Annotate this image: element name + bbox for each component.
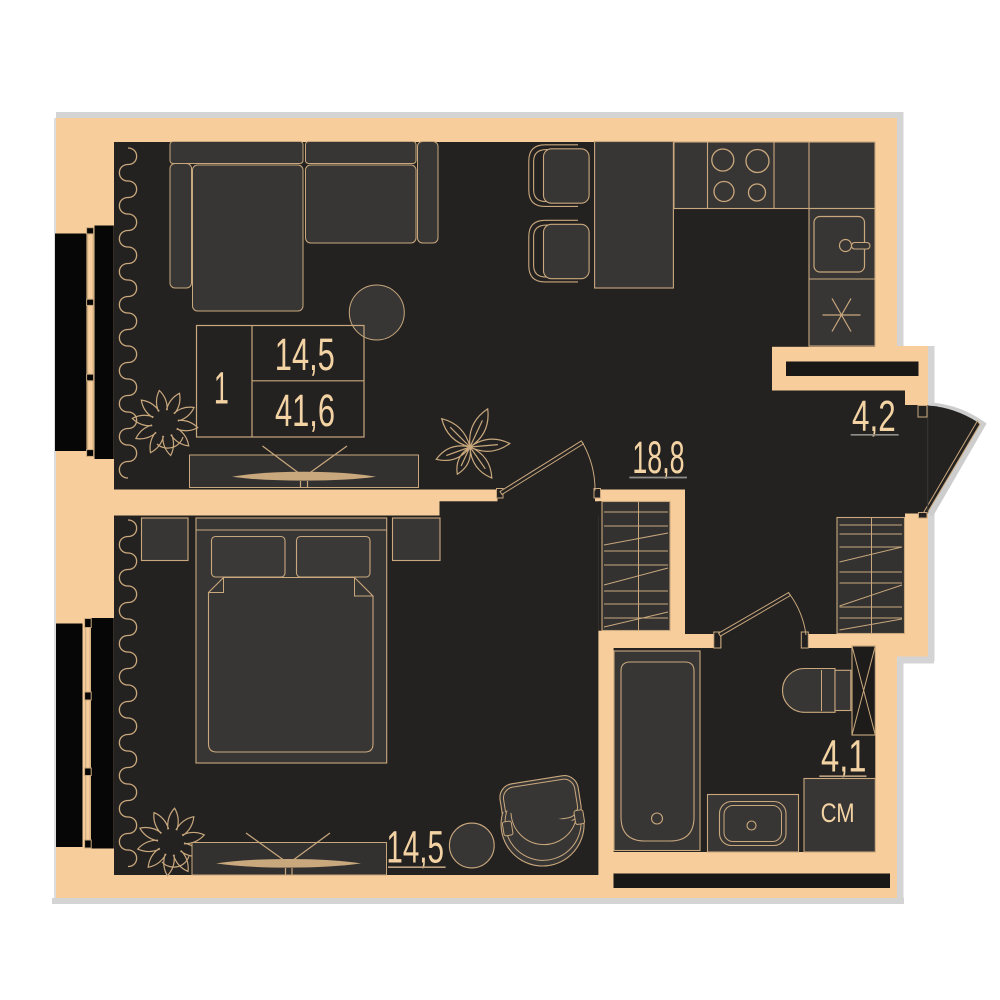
svg-text:41,6: 41,6 <box>275 385 335 436</box>
svg-text:18,8: 18,8 <box>632 432 684 483</box>
svg-text:4,2: 4,2 <box>852 392 896 441</box>
svg-text:14,5: 14,5 <box>386 822 444 873</box>
svg-text:СМ: СМ <box>821 798 855 828</box>
svg-text:1: 1 <box>214 363 229 414</box>
svg-text:4,1: 4,1 <box>821 731 867 782</box>
svg-text:14,5: 14,5 <box>275 329 335 380</box>
